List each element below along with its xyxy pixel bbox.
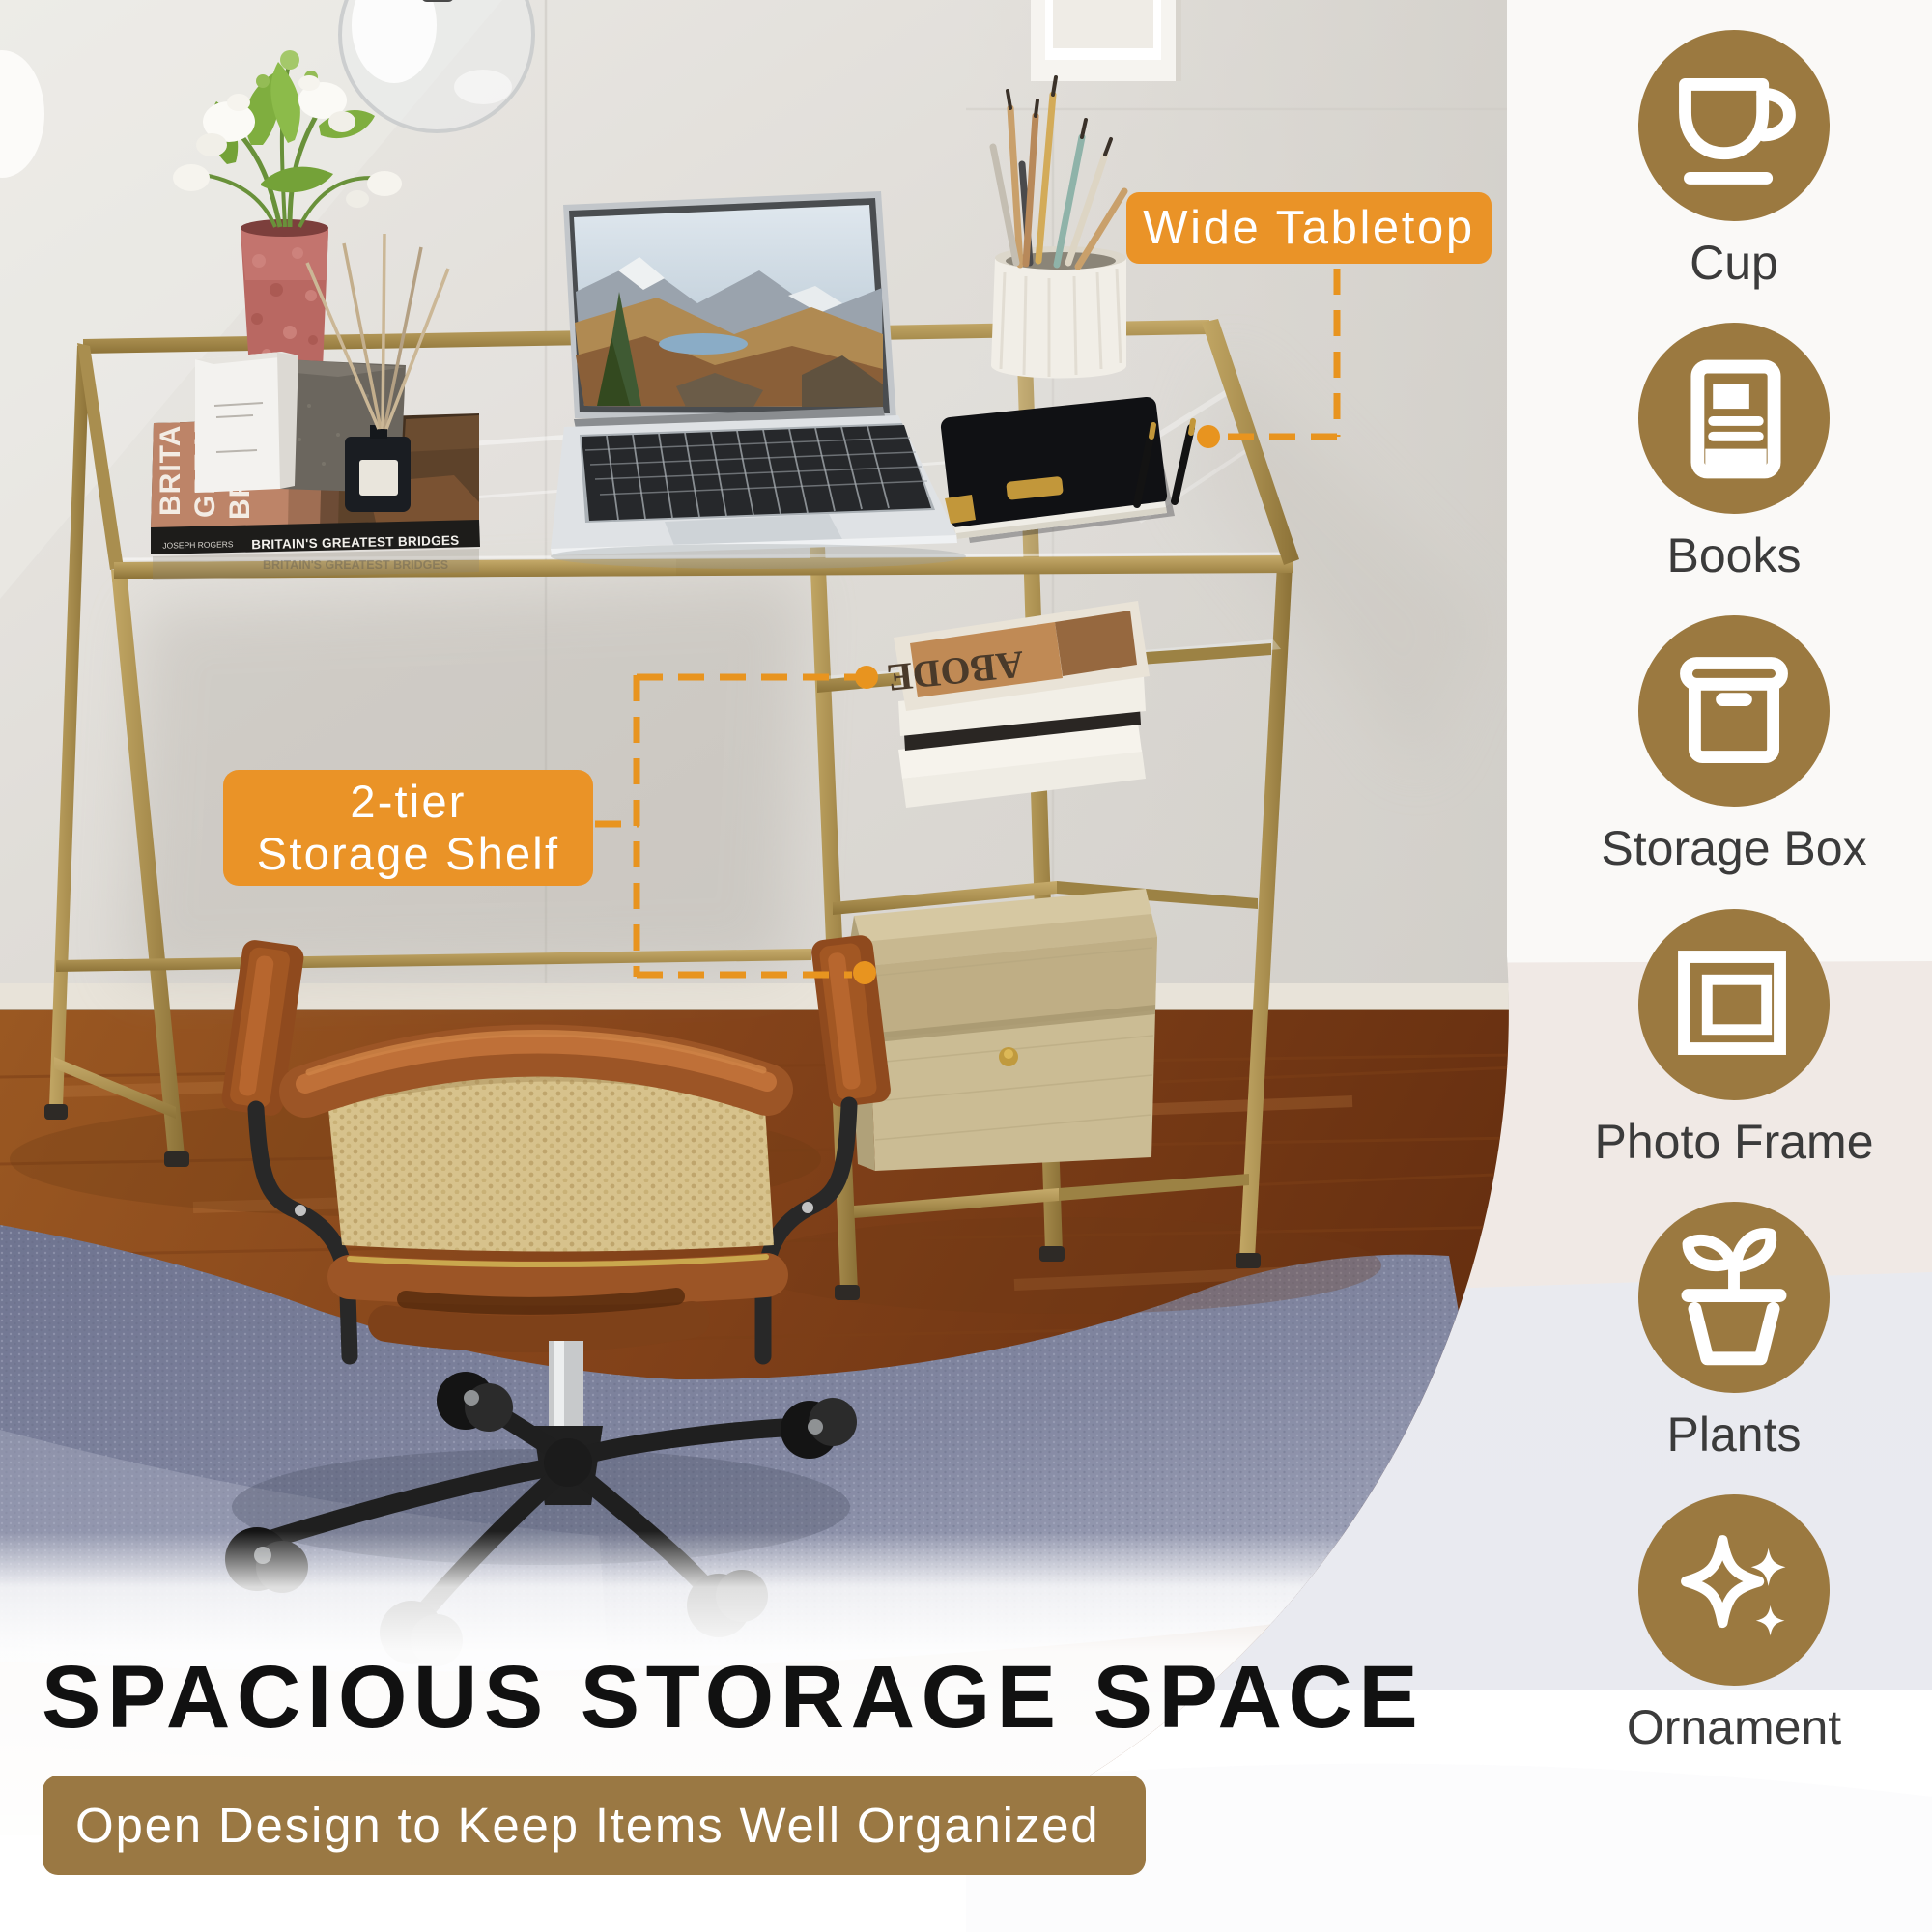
svg-text:BRITAIN'S GREATEST BRIDGES: BRITAIN'S GREATEST BRIDGES [263, 558, 448, 572]
svg-text:JOSEPH ROGERS: JOSEPH ROGERS [162, 539, 234, 551]
